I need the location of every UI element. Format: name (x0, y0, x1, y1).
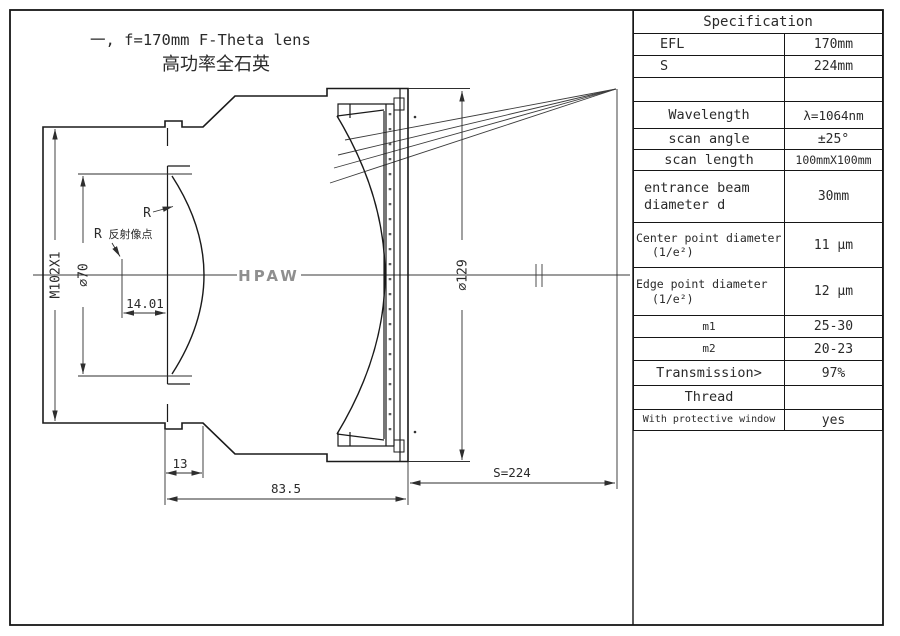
drawing-sheet: { "page": { "title_line1": "一, f=170mm F… (0, 0, 900, 636)
dim-m102x1: M102X1 (49, 252, 64, 299)
dim-phi129: ⌀129 (456, 259, 471, 290)
spec-row-s: S224mm (634, 55, 882, 77)
spec-label-blank (634, 78, 785, 101)
spec-value-m1: 25-30 (785, 316, 882, 337)
spec-label-s: S (634, 56, 785, 77)
dim-83-5: 83.5 (271, 481, 301, 496)
dim-phi70: ⌀70 (77, 263, 92, 286)
spec-label-edge-point: Edge point diameter(1/e²) (634, 268, 785, 315)
dim-14-01: 14.01 (126, 296, 164, 311)
spec-row-entrance-beam: entrance beamdiameter d30mm (634, 170, 882, 222)
spec-row-scan-angle: scan angle±25° (634, 128, 882, 149)
spec-value-edge-point: 12 μm (785, 268, 882, 315)
dim-s224: S=224 (493, 465, 531, 480)
label-r-reflect-r: R (94, 227, 102, 242)
spec-label-center-point: Center point diameter(1/e²) (634, 223, 785, 267)
spec-value-thread (785, 386, 882, 409)
specification-table: Specification EFL170mmS224mmWavelengthλ=… (633, 10, 883, 431)
spec-row-blank (634, 77, 882, 101)
spec-value-m2: 20-23 (785, 338, 882, 360)
spec-row-protective-window: With protective windowyes (634, 409, 882, 431)
scan-rays (330, 89, 616, 183)
spec-label-entrance-beam: entrance beamdiameter d (634, 171, 785, 222)
drawing-subtitle-cjk: 高功率全石英 (162, 54, 270, 75)
spec-row-center-point: Center point diameter(1/e²)11 μm (634, 222, 882, 267)
optical-axis-centerline (33, 264, 630, 287)
spec-label-thread: Thread (634, 386, 785, 409)
spec-value-center-point: 11 μm (785, 223, 882, 267)
spec-row-wavelength: Wavelengthλ=1064nm (634, 101, 882, 128)
spec-value-scan-length: 100mmX100mm (785, 150, 882, 170)
spec-row-scan-length: scan length100mmX100mm (634, 149, 882, 170)
spec-label-protective-window: With protective window (634, 410, 785, 431)
spec-table-header: Specification (634, 11, 882, 33)
spec-value-efl: 170mm (785, 34, 882, 55)
spec-row-efl: EFL170mm (634, 33, 882, 55)
spec-label-scan-angle: scan angle (634, 129, 785, 149)
spec-row-transmission: Transmission>97% (634, 360, 882, 385)
spec-value-blank (785, 78, 882, 101)
spec-row-m2: m220-23 (634, 337, 882, 360)
spec-value-protective-window: yes (785, 410, 882, 431)
reflect-leader-arrow (112, 243, 120, 257)
spec-label-m2: m2 (634, 338, 785, 360)
spec-label-wavelength: Wavelength (634, 102, 785, 128)
spec-value-transmission: 97% (785, 361, 882, 385)
dim-13: 13 (172, 456, 187, 471)
spec-label-m1: m1 (634, 316, 785, 337)
dimension-lines (55, 91, 615, 499)
spec-value-wavelength: λ=1064nm (785, 102, 882, 128)
spec-label-transmission: Transmission> (634, 361, 785, 385)
spec-label-scan-length: scan length (634, 150, 785, 170)
spec-row-m1: m125-30 (634, 315, 882, 337)
spec-value-s: 224mm (785, 56, 882, 77)
hpaw-logo-text: HPAW (238, 267, 300, 285)
label-r: R (143, 206, 151, 221)
r-leader-arrow (153, 207, 173, 213)
drawing-title: 一, f=170mm F-Theta lens (90, 31, 311, 49)
spec-row-thread: Thread (634, 385, 882, 409)
spec-label-efl: EFL (634, 34, 785, 55)
spec-value-scan-angle: ±25° (785, 129, 882, 149)
spec-value-entrance-beam: 30mm (785, 171, 882, 222)
label-r-reflect: R 反射像点 (94, 227, 152, 242)
label-r-reflect-cjk: 反射像点 (102, 227, 153, 241)
spec-row-edge-point: Edge point diameter(1/e²)12 μm (634, 267, 882, 315)
